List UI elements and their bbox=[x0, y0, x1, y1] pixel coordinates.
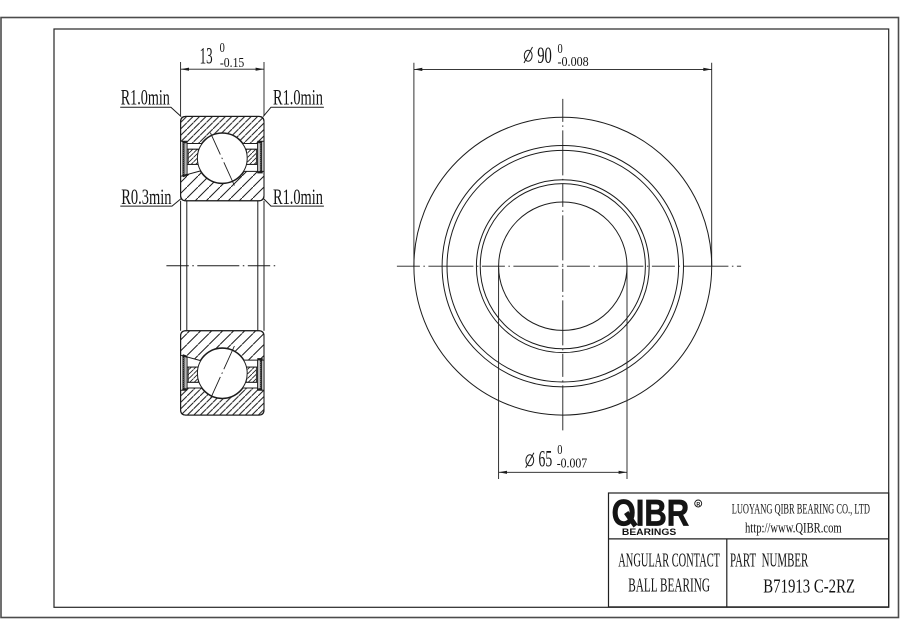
svg-text:-0.008: -0.008 bbox=[558, 54, 589, 69]
svg-text:R1.0min: R1.0min bbox=[273, 184, 323, 209]
svg-text:65: 65 bbox=[539, 446, 553, 471]
svg-text:BEARINGS: BEARINGS bbox=[622, 527, 676, 537]
svg-text:http://www.QIBR.com: http://www.QIBR.com bbox=[745, 521, 842, 537]
svg-text:R0.3min: R0.3min bbox=[121, 184, 171, 209]
svg-text:13: 13 bbox=[200, 43, 213, 68]
svg-text:LUOYANG QIBR BEARING CO., LTD: LUOYANG QIBR BEARING CO., LTD bbox=[732, 501, 870, 517]
svg-text:0: 0 bbox=[220, 40, 225, 55]
svg-text:ANGULAR CONTACT: ANGULAR CONTACT bbox=[618, 551, 720, 572]
svg-text:B71913 C-2RZ: B71913 C-2RZ bbox=[763, 577, 855, 598]
svg-text:90: 90 bbox=[537, 43, 552, 68]
svg-text:R: R bbox=[696, 502, 700, 508]
svg-text:BALL BEARING: BALL BEARING bbox=[628, 576, 710, 597]
svg-text:R1.0min: R1.0min bbox=[273, 85, 323, 110]
svg-text:PART NUMBER: PART NUMBER bbox=[730, 551, 808, 572]
svg-text:-0.007: -0.007 bbox=[557, 455, 588, 470]
svg-text:-0.15: -0.15 bbox=[220, 55, 245, 70]
svg-text:R1.0min: R1.0min bbox=[121, 85, 170, 110]
